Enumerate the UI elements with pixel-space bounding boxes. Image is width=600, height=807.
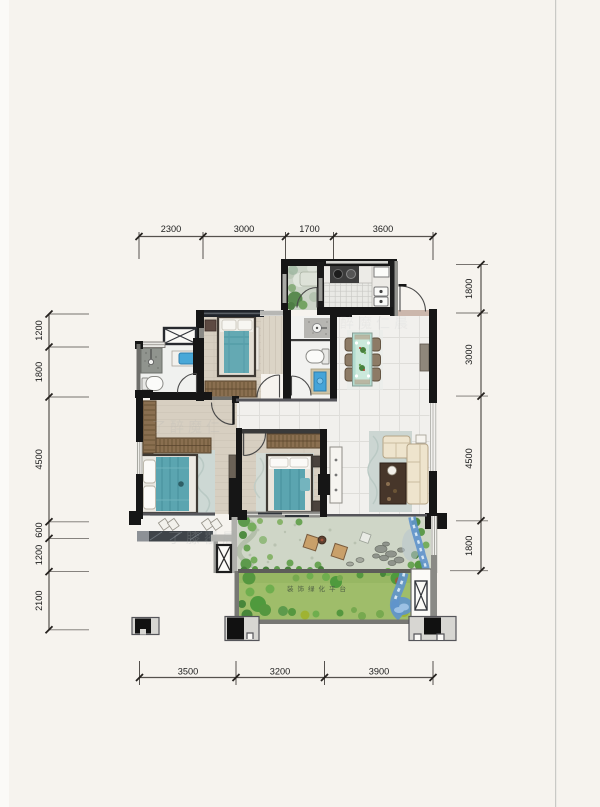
svg-text:1800: 1800 [464,536,474,556]
svg-text:600: 600 [34,522,44,537]
svg-text:3600: 3600 [373,224,393,234]
svg-text:1200: 1200 [34,545,44,565]
svg-text:4500: 4500 [464,448,474,468]
svg-text:3500: 3500 [178,667,198,677]
svg-text:3000: 3000 [464,344,474,364]
svg-text:4500: 4500 [34,449,44,469]
svg-text:3900: 3900 [369,667,389,677]
svg-text:3200: 3200 [270,667,290,677]
svg-text:了膝覆晨: 了膝覆晨 [168,530,240,546]
svg-text:1700: 1700 [299,224,319,234]
svg-text:1800: 1800 [34,362,44,382]
svg-text:装饰绿化平台: 装饰绿化平台 [287,584,350,593]
svg-text:了醉魔仁: 了醉魔仁 [152,419,224,435]
svg-text:2100: 2100 [34,590,44,610]
svg-text:3000: 3000 [234,224,254,234]
svg-text:1800: 1800 [464,279,474,299]
svg-text:醉魔仁晨: 醉魔仁晨 [340,315,412,331]
svg-text:1200: 1200 [34,320,44,340]
svg-text:2300: 2300 [161,224,181,234]
